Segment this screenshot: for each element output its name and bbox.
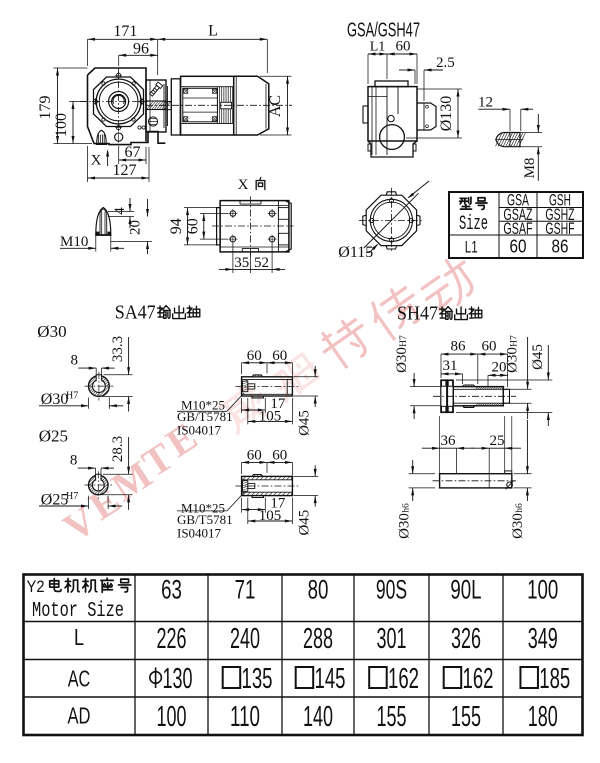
svg-text:28.3: 28.3 xyxy=(110,436,126,462)
svg-text:Ø30: Ø30 xyxy=(41,391,69,408)
svg-text:25: 25 xyxy=(490,433,505,449)
svg-text:31: 31 xyxy=(443,358,458,374)
svg-text:90L: 90L xyxy=(450,575,481,605)
svg-text:180: 180 xyxy=(528,701,558,733)
svg-text:Ø45: Ø45 xyxy=(297,510,313,536)
svg-text:100: 100 xyxy=(53,113,70,137)
svg-text:H7: H7 xyxy=(66,491,78,502)
svg-text:67: 67 xyxy=(125,144,141,161)
svg-text:145: 145 xyxy=(315,663,346,695)
svg-text:Ø30: Ø30 xyxy=(37,322,66,341)
svg-text:4: 4 xyxy=(112,207,128,215)
svg-text:71: 71 xyxy=(235,575,256,605)
svg-text:105: 105 xyxy=(259,408,282,424)
svg-text:105: 105 xyxy=(259,508,282,524)
svg-text:AD: AD xyxy=(68,703,91,729)
svg-text:H7: H7 xyxy=(399,335,409,347)
svg-text:226: 226 xyxy=(157,623,187,655)
svg-text:349: 349 xyxy=(528,623,558,655)
svg-text:60: 60 xyxy=(272,348,287,364)
svg-text:155: 155 xyxy=(377,701,407,733)
svg-text:162: 162 xyxy=(388,663,419,695)
svg-text:SH47: SH47 xyxy=(397,303,438,325)
svg-text:35: 35 xyxy=(234,255,249,271)
svg-text:171: 171 xyxy=(113,23,137,40)
svg-text:162: 162 xyxy=(463,663,494,695)
svg-text:H7: H7 xyxy=(66,391,78,402)
svg-text:Ø25: Ø25 xyxy=(41,492,69,509)
svg-text:185: 185 xyxy=(539,663,570,695)
svg-text:Ø130: Ø130 xyxy=(438,96,455,132)
svg-text:100: 100 xyxy=(157,701,187,733)
svg-text:Size: Size xyxy=(459,213,488,236)
svg-text:IS04017: IS04017 xyxy=(177,423,222,438)
svg-text:240: 240 xyxy=(230,623,260,655)
svg-text:94: 94 xyxy=(168,218,185,234)
svg-text:135: 135 xyxy=(242,663,273,695)
svg-text:60: 60 xyxy=(272,447,287,463)
svg-text:127: 127 xyxy=(113,162,137,179)
svg-text:86: 86 xyxy=(552,237,569,257)
svg-text:140: 140 xyxy=(303,701,333,733)
svg-text:8: 8 xyxy=(70,453,78,469)
svg-text:60: 60 xyxy=(247,447,262,463)
svg-text:M8: M8 xyxy=(522,158,538,179)
svg-text:L: L xyxy=(208,23,218,40)
svg-text:2.5: 2.5 xyxy=(436,55,455,71)
svg-text:GSHF: GSHF xyxy=(545,219,574,238)
svg-text:155: 155 xyxy=(451,701,481,733)
svg-text:Ø30: Ø30 xyxy=(505,347,521,373)
svg-text:Ø30: Ø30 xyxy=(397,513,413,539)
svg-text:Ø45: Ø45 xyxy=(530,344,546,370)
svg-text:SA47: SA47 xyxy=(115,302,156,324)
svg-text:Ø30: Ø30 xyxy=(394,347,410,373)
svg-text:96: 96 xyxy=(133,41,149,58)
svg-text:60: 60 xyxy=(185,218,202,234)
svg-text:179: 179 xyxy=(37,96,54,120)
svg-text:130: 130 xyxy=(163,663,193,695)
svg-text:IS04017: IS04017 xyxy=(177,526,222,541)
svg-text:20: 20 xyxy=(128,220,144,235)
svg-text:Motor Size: Motor Size xyxy=(32,600,124,623)
svg-text:Ø25: Ø25 xyxy=(39,427,68,446)
svg-text:12: 12 xyxy=(478,95,493,111)
svg-text:L: L xyxy=(74,624,84,650)
svg-text:AC: AC xyxy=(68,666,91,692)
svg-text:80: 80 xyxy=(308,575,329,605)
svg-text:301: 301 xyxy=(377,623,407,655)
svg-text:Ø30: Ø30 xyxy=(510,513,526,539)
svg-text:L1: L1 xyxy=(370,40,386,55)
svg-text:h6: h6 xyxy=(515,503,525,513)
svg-text:H7: H7 xyxy=(510,335,520,347)
svg-text:X: X xyxy=(91,153,102,169)
svg-text:GSAF: GSAF xyxy=(503,219,532,238)
svg-text:Y2: Y2 xyxy=(27,577,45,596)
svg-text:8: 8 xyxy=(70,353,78,369)
svg-text:L1: L1 xyxy=(465,238,478,257)
svg-text:288: 288 xyxy=(303,623,333,655)
svg-text:M10: M10 xyxy=(60,234,88,250)
svg-text:36: 36 xyxy=(441,433,457,449)
svg-text:X: X xyxy=(238,177,249,193)
svg-text:86: 86 xyxy=(451,339,467,355)
svg-text:100: 100 xyxy=(527,575,558,605)
svg-text:326: 326 xyxy=(451,623,481,655)
svg-text:60: 60 xyxy=(482,339,497,355)
svg-text:60: 60 xyxy=(510,237,527,257)
svg-text:63: 63 xyxy=(161,575,182,605)
svg-text:90S: 90S xyxy=(376,575,407,605)
svg-text:AC: AC xyxy=(267,95,284,117)
svg-text:60: 60 xyxy=(396,39,411,55)
svg-text:Ø45: Ø45 xyxy=(297,410,313,436)
svg-text:60: 60 xyxy=(247,348,262,364)
svg-text:110: 110 xyxy=(230,701,260,733)
svg-text:52: 52 xyxy=(254,255,269,271)
svg-text:33.3: 33.3 xyxy=(110,336,126,362)
svg-text:h6: h6 xyxy=(402,503,412,513)
